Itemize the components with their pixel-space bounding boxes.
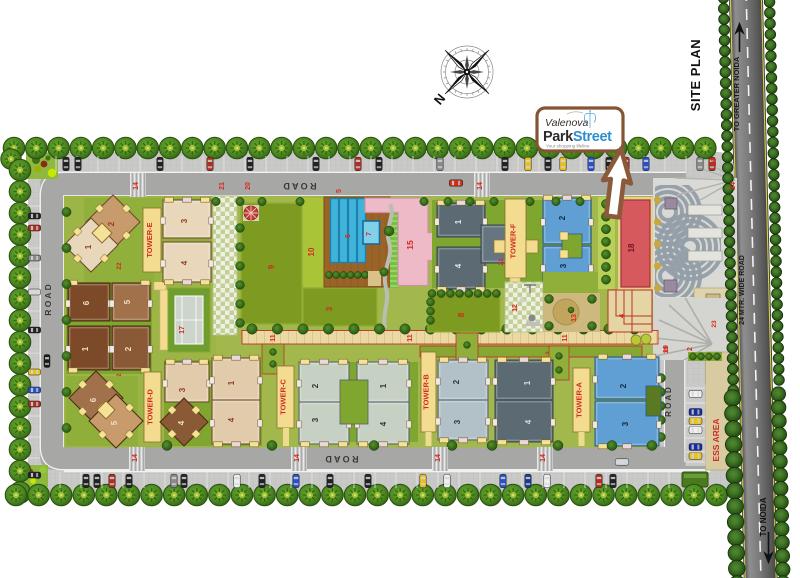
svg-text:14: 14 (132, 454, 139, 462)
svg-text:1: 1 (523, 380, 532, 385)
svg-text:22: 22 (116, 262, 123, 270)
svg-text:24: 24 (730, 182, 737, 190)
svg-text:1: 1 (84, 244, 93, 249)
svg-text:10: 10 (307, 247, 316, 256)
svg-text:12: 12 (512, 304, 519, 312)
svg-text:2: 2 (619, 383, 628, 388)
svg-text:TOWER-E: TOWER-E (145, 222, 154, 257)
svg-text:Valenova: Valenova (545, 117, 589, 129)
svg-text:3: 3 (178, 387, 187, 392)
svg-text:2: 2 (124, 346, 133, 351)
svg-text:4: 4 (177, 420, 186, 425)
svg-text:6: 6 (345, 234, 352, 238)
svg-text:4: 4 (524, 419, 533, 424)
svg-text:R O A D: R O A D (283, 181, 317, 191)
svg-text:4: 4 (227, 417, 236, 422)
svg-text:5: 5 (110, 420, 119, 425)
svg-text:15: 15 (405, 240, 415, 250)
svg-text:14: 14 (133, 182, 140, 190)
svg-text:21: 21 (219, 182, 226, 190)
svg-text:5: 5 (123, 299, 132, 304)
svg-text:1: 1 (81, 346, 90, 351)
svg-text:3: 3 (453, 419, 462, 424)
svg-text:13: 13 (571, 314, 578, 322)
svg-text:14: 14 (294, 454, 301, 462)
svg-text:2: 2 (558, 215, 567, 220)
svg-text:3: 3 (621, 421, 630, 426)
svg-text:17: 17 (179, 326, 186, 334)
svg-text:TOWER-B: TOWER-B (422, 374, 431, 410)
svg-text:14: 14 (540, 454, 547, 462)
svg-text:R O A D: R O A D (325, 454, 359, 464)
svg-text:11: 11 (407, 334, 414, 342)
svg-text:4: 4 (379, 421, 388, 426)
svg-text:11: 11 (270, 334, 277, 342)
svg-text:TO NOIDA: TO NOIDA (759, 497, 768, 536)
svg-text:2: 2 (107, 221, 116, 226)
svg-text:23: 23 (711, 320, 718, 328)
svg-text:TOWER-F: TOWER-F (509, 223, 518, 258)
svg-text:TO GREATER NOIDA: TO GREATER NOIDA (732, 56, 741, 131)
svg-text:22: 22 (498, 258, 505, 266)
svg-text:R O A D: R O A D (43, 284, 53, 315)
svg-text:18: 18 (627, 243, 636, 252)
svg-text:3: 3 (325, 306, 334, 311)
svg-text:24 MTR. WIDE ROAD: 24 MTR. WIDE ROAD (739, 255, 746, 325)
svg-text:14: 14 (435, 454, 442, 462)
svg-text:19: 19 (663, 346, 670, 354)
svg-text:6: 6 (82, 300, 91, 305)
svg-text:26: 26 (711, 158, 718, 166)
svg-text:3: 3 (180, 218, 189, 223)
svg-text:3: 3 (311, 417, 320, 422)
svg-text:ESS AREA: ESS AREA (711, 418, 721, 461)
svg-text:20: 20 (245, 182, 252, 190)
svg-text:1: 1 (227, 380, 236, 385)
svg-text:TOWER-A: TOWER-A (575, 382, 584, 418)
svg-text:3: 3 (559, 263, 568, 268)
svg-text:2: 2 (311, 383, 320, 388)
svg-text:6: 6 (89, 397, 98, 402)
svg-text:1: 1 (454, 219, 463, 224)
svg-text:SITE PLAN: SITE PLAN (688, 39, 703, 111)
svg-text:11: 11 (562, 334, 569, 342)
svg-text:9: 9 (267, 264, 276, 269)
svg-text:1: 1 (379, 383, 388, 388)
svg-text:Your shopping lifeline: Your shopping lifeline (546, 144, 590, 149)
svg-text:5: 5 (336, 189, 343, 193)
svg-text:7: 7 (366, 232, 373, 236)
svg-text:14: 14 (477, 182, 484, 190)
svg-text:R O A D: R O A D (664, 387, 673, 417)
svg-text:4: 4 (180, 260, 189, 265)
svg-text:TOWER-D: TOWER-D (146, 389, 155, 425)
svg-text:8: 8 (457, 312, 466, 317)
svg-text:TOWER-C: TOWER-C (279, 379, 288, 415)
svg-text:2: 2 (452, 379, 461, 384)
svg-text:2: 2 (687, 347, 694, 351)
svg-text:4: 4 (454, 263, 463, 268)
